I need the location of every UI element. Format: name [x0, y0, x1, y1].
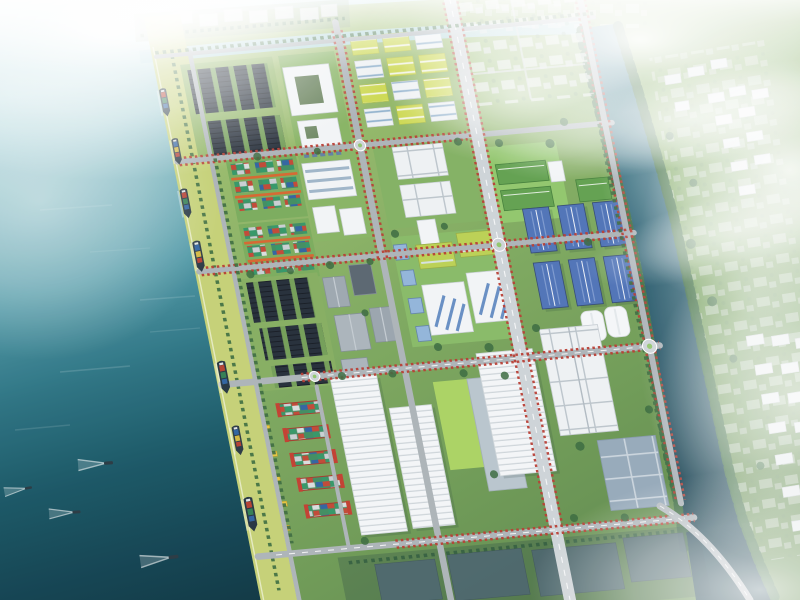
aerial-rendering [0, 0, 800, 600]
scene-canvas [0, 0, 800, 600]
fog-overlay [0, 0, 800, 600]
